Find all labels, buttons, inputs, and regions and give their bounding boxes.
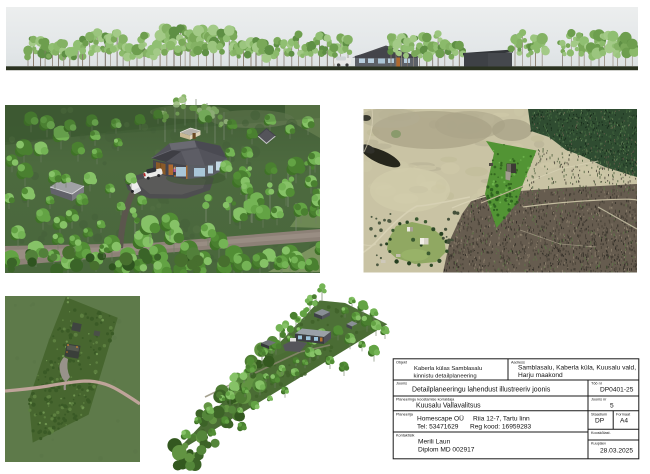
svg-text:A4: A4: [620, 418, 628, 425]
svg-text:Staadium: Staadium: [591, 413, 607, 417]
svg-text:DP0401-25: DP0401-25: [600, 387, 634, 394]
svg-text:Merili Laun: Merili Laun: [418, 439, 451, 446]
svg-text:Riia 12-7, Tartu linn: Riia 12-7, Tartu linn: [473, 416, 530, 423]
svg-text:Detailplaneeringu lahendust il: Detailplaneeringu lahendust illustreeriv…: [412, 387, 551, 394]
svg-text:5: 5: [610, 403, 614, 410]
svg-text:Joonis: Joonis: [396, 382, 407, 386]
svg-text:Töö nr: Töö nr: [591, 382, 603, 386]
svg-text:Objekt: Objekt: [396, 361, 408, 365]
svg-text:Kaberla külas Samblasalu: Kaberla külas Samblasalu: [414, 366, 482, 372]
svg-text:Homescape OÜ: Homescape OÜ: [417, 415, 464, 423]
svg-text:Kooskõlast.: Kooskõlast.: [591, 431, 611, 435]
svg-text:Reg kood: 16959283: Reg kood: 16959283: [470, 424, 532, 431]
svg-text:Formaat: Formaat: [616, 413, 631, 417]
svg-text:Kuusalu Vallavalitsus: Kuusalu Vallavalitsus: [416, 403, 481, 410]
svg-text:Kontaktisik: Kontaktisik: [396, 434, 414, 438]
svg-text:Planeerija: Planeerija: [396, 413, 414, 417]
svg-text:28.03.2025: 28.03.2025: [600, 448, 633, 455]
svg-text:DP: DP: [595, 418, 605, 425]
svg-text:Diplom MD 002917: Diplom MD 002917: [418, 447, 475, 454]
svg-text:Tel: 53471629: Tel: 53471629: [417, 424, 459, 431]
svg-text:Samblasalu, Kaberla küla, Kuus: Samblasalu, Kaberla küla, Kuusalu vald,: [518, 365, 636, 372]
svg-text:kinnistu detailplaneering: kinnistu detailplaneering: [414, 374, 477, 380]
svg-text:Harju maakond: Harju maakond: [518, 372, 563, 379]
svg-text:Planeeringu koostamise korrald: Planeeringu koostamise korraldaja: [396, 398, 455, 402]
svg-text:Kuupäev: Kuupäev: [591, 442, 606, 446]
svg-text:Joonis nr: Joonis nr: [591, 398, 607, 402]
